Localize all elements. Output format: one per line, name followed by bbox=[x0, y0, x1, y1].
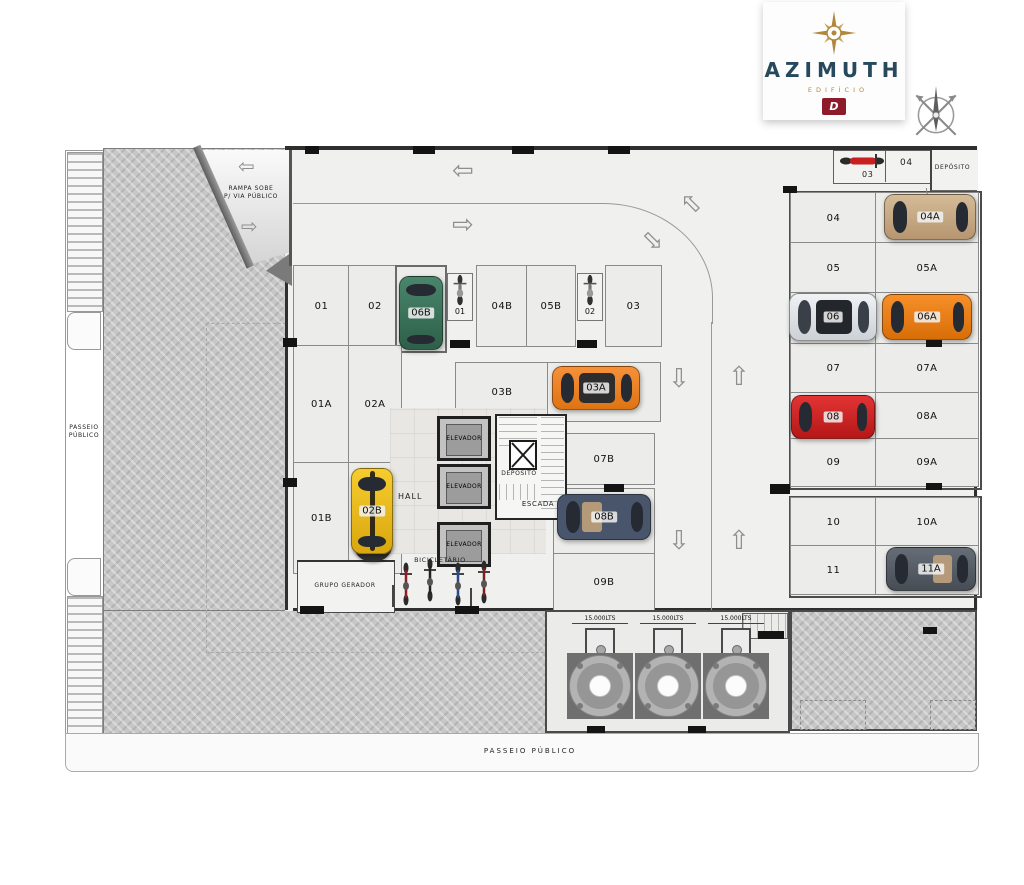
tank-bolt bbox=[577, 663, 583, 669]
sidewalk-bottom-label: PASSEIO PÚBLICO bbox=[400, 747, 660, 756]
parking-spot-09: 09 bbox=[790, 438, 877, 487]
lane-arrow-east-icon: ⇨ bbox=[452, 212, 474, 238]
column-mark bbox=[923, 627, 937, 634]
column-mark bbox=[604, 484, 624, 492]
bike-rack-post bbox=[392, 585, 394, 607]
car-label-04A: 04A bbox=[917, 212, 943, 223]
column-mark bbox=[455, 606, 479, 614]
bicycle-icon bbox=[422, 558, 438, 602]
car-label-06: 06 bbox=[824, 312, 843, 323]
car-dark-blue: 08B bbox=[557, 494, 651, 540]
lane-divider-horizontal bbox=[293, 203, 505, 204]
car-rear-window bbox=[631, 502, 643, 532]
column-mark bbox=[758, 631, 784, 639]
car-rear-window bbox=[358, 536, 385, 547]
lane-arrow-west-icon: ⇦ bbox=[452, 158, 474, 184]
sidewalk-left-label: PASSEIO PÚBLICO bbox=[64, 424, 104, 439]
car-rear-window bbox=[858, 301, 869, 332]
tank-bolt bbox=[577, 703, 583, 709]
lane-arrow-south2-icon: ⇩ bbox=[668, 528, 690, 554]
car-silver: 06 bbox=[789, 293, 877, 341]
tank-2-pedestal bbox=[653, 628, 683, 655]
tank-3-pedestal bbox=[721, 628, 751, 655]
parking-spot-01: 01 bbox=[293, 265, 350, 347]
logo-card: AZIMUTH EDIFÍCIO D bbox=[763, 2, 905, 120]
car-windshield bbox=[893, 201, 907, 233]
floor-plan-canvas: PASSEIO PÚBLICO PASSEIO PÚBLICO RAMPA SO… bbox=[0, 0, 1024, 885]
car-rear-window bbox=[953, 302, 964, 332]
tank-bolt bbox=[685, 663, 691, 669]
column-mark bbox=[300, 606, 324, 614]
car-orange-striped: 03A bbox=[552, 366, 640, 410]
curb-ramp-top bbox=[67, 312, 101, 350]
tank-bolt bbox=[685, 703, 691, 709]
bicycle-icon bbox=[398, 562, 414, 606]
moto-spot-03-label: 03 bbox=[862, 170, 873, 180]
tank-3 bbox=[703, 653, 769, 719]
deposito-top-label: DEPÓSITO bbox=[930, 164, 975, 172]
deposito-core-label: DEPÓSITO bbox=[491, 470, 547, 478]
car-label-08: 08 bbox=[824, 412, 843, 423]
tank-2-label: 15.000LTS bbox=[640, 615, 696, 624]
car-yellow: 02B bbox=[351, 468, 393, 554]
compass-rose-icon bbox=[908, 84, 964, 142]
moto-spot-01: 01 bbox=[447, 273, 473, 321]
tank-bolt bbox=[645, 703, 651, 709]
parking-spot-03: 03 bbox=[605, 265, 662, 347]
tank-bolt bbox=[713, 703, 719, 709]
car-orange: 06A bbox=[882, 294, 972, 340]
parking-spot-01B: 01B bbox=[293, 462, 350, 574]
tank-bolt bbox=[617, 663, 623, 669]
car-rear-window bbox=[407, 335, 436, 344]
parking-spot-11: 11 bbox=[790, 545, 877, 595]
shaft-box bbox=[509, 440, 537, 470]
parking-spot-05B: 05B bbox=[526, 265, 576, 347]
ramp-arrow-right-icon: ⇨ bbox=[241, 216, 258, 236]
courtyard-dashed-area bbox=[800, 700, 866, 730]
elevator-2: ELEVADOR bbox=[437, 464, 491, 509]
column-mark bbox=[283, 338, 297, 347]
column-mark bbox=[450, 340, 470, 348]
left-sidewalk bbox=[65, 150, 105, 737]
tank-1-label: 15.000LTS bbox=[572, 615, 628, 624]
car-label-03A: 03A bbox=[583, 383, 609, 394]
tank-1-pedestal bbox=[585, 628, 615, 655]
paved-yard-bottom bbox=[103, 610, 547, 735]
car-windshield bbox=[406, 284, 436, 296]
tank-bolt bbox=[753, 703, 759, 709]
lane-arrow-north2-icon: ⇧ bbox=[728, 528, 750, 554]
car-rear-window bbox=[956, 202, 968, 232]
ramp-label-line1: RAMPA SOBE bbox=[229, 185, 274, 192]
car-tan: 04A bbox=[884, 194, 976, 240]
logo-title: AZIMUTH bbox=[763, 58, 905, 82]
parking-spot-05A: 05A bbox=[875, 242, 979, 294]
column-mark bbox=[305, 146, 319, 154]
column-mark bbox=[587, 726, 605, 733]
car-windshield bbox=[358, 477, 387, 490]
red-motorcycle-icon bbox=[838, 152, 886, 170]
west-wall bbox=[285, 265, 288, 610]
column-mark bbox=[926, 483, 942, 490]
shaft-x-icon bbox=[511, 442, 535, 468]
column-mark bbox=[413, 146, 435, 154]
lane-arrow-north-icon: ⇧ bbox=[728, 364, 750, 390]
parking-spot-04B: 04B bbox=[476, 265, 528, 347]
projection-line-bottom bbox=[206, 652, 544, 653]
ramp-label: RAMPA SOBE P/ VIA PÚBLICO bbox=[214, 185, 288, 200]
tank-3-label: 15.000LTS bbox=[708, 615, 764, 624]
elevator-3-label: ELEVADOR bbox=[440, 541, 488, 548]
moto-spot-04-label: 04 bbox=[900, 158, 913, 169]
car-dark-grey: 11A bbox=[886, 547, 976, 591]
parking-spot-07: 07 bbox=[790, 343, 877, 394]
lane-arrow-south-icon: ⇩ bbox=[668, 366, 690, 392]
column-mark bbox=[688, 726, 706, 733]
tank-2 bbox=[635, 653, 701, 719]
car-red: 08 bbox=[791, 395, 875, 439]
car-rear-window bbox=[621, 374, 632, 403]
ramp-arrow-left-icon: ⇦ bbox=[238, 156, 255, 176]
column-mark bbox=[926, 340, 942, 347]
tank-bolt bbox=[713, 663, 719, 669]
parking-spot-10: 10 bbox=[790, 497, 877, 547]
tank-bolt bbox=[617, 703, 623, 709]
tank-hole bbox=[725, 675, 747, 697]
logo-subtitle: EDIFÍCIO bbox=[767, 86, 909, 94]
generator-room-label: GRUPO GERADOR bbox=[299, 582, 391, 590]
bike-rack-post bbox=[470, 588, 472, 606]
elevator-1: ELEVADOR bbox=[437, 416, 491, 461]
parking-spot-02: 02 bbox=[348, 265, 402, 347]
bicycle-icon bbox=[450, 562, 466, 606]
car-label-11A: 11A bbox=[918, 564, 944, 575]
parking-spot-04: 04 bbox=[790, 192, 877, 244]
tank-hole bbox=[589, 675, 611, 697]
car-windshield bbox=[799, 402, 811, 432]
motorcycle-icon bbox=[452, 274, 468, 306]
car-windshield bbox=[566, 501, 580, 533]
parking-spot-09A: 09A bbox=[875, 438, 979, 487]
column-mark bbox=[608, 146, 630, 154]
car-label-02B: 02B bbox=[359, 506, 385, 517]
car-windshield bbox=[891, 301, 904, 333]
bicycle-icon bbox=[476, 560, 492, 604]
car-windshield bbox=[798, 300, 811, 333]
car-windshield bbox=[561, 373, 574, 403]
car-rear-window bbox=[857, 403, 868, 432]
car-label-08B: 08B bbox=[591, 512, 617, 523]
motorcycle-icon bbox=[582, 274, 598, 306]
compass-star-icon bbox=[811, 10, 857, 56]
column-mark bbox=[770, 484, 790, 494]
parking-spot-09B: 09B bbox=[553, 553, 655, 612]
parking-spot-08A: 08A bbox=[875, 392, 979, 440]
tank-bolt bbox=[645, 663, 651, 669]
car-label-06B: 06B bbox=[408, 308, 434, 319]
curb-ramp-bottom bbox=[67, 558, 101, 596]
car-windshield bbox=[895, 554, 908, 584]
ramp-right-wall bbox=[289, 150, 292, 266]
courtyard-dashed-area bbox=[930, 700, 976, 730]
tank-hole bbox=[657, 675, 679, 697]
column-mark bbox=[783, 186, 797, 193]
moto-spot-02: 02 bbox=[577, 273, 603, 321]
car-green: 06B bbox=[399, 276, 443, 350]
parking-spot-10A: 10A bbox=[875, 497, 979, 547]
column-mark bbox=[577, 340, 597, 348]
elevator-1-label: ELEVADOR bbox=[440, 435, 488, 442]
car-label-06A: 06A bbox=[914, 312, 940, 323]
elevator-2-label: ELEVADOR bbox=[440, 483, 488, 490]
column-mark bbox=[512, 146, 534, 154]
hall-label: HALL bbox=[398, 492, 422, 502]
car-rear-window bbox=[957, 555, 968, 584]
projection-line-top bbox=[206, 323, 286, 324]
tank-1 bbox=[567, 653, 633, 719]
projection-line-vertical bbox=[206, 323, 207, 653]
lane-divider-vertical bbox=[711, 322, 712, 610]
stair-flight-lower bbox=[499, 484, 537, 500]
parking-spot-05: 05 bbox=[790, 242, 877, 294]
tank-bolt bbox=[753, 663, 759, 669]
column-mark bbox=[283, 478, 297, 487]
parking-spot-07B: 07B bbox=[553, 433, 655, 485]
ramp-label-line2: P/ VIA PÚBLICO bbox=[224, 193, 278, 200]
parking-spot-01A: 01A bbox=[293, 345, 350, 464]
logo-emblem: D bbox=[822, 98, 846, 115]
parking-spot-07A: 07A bbox=[875, 343, 979, 394]
